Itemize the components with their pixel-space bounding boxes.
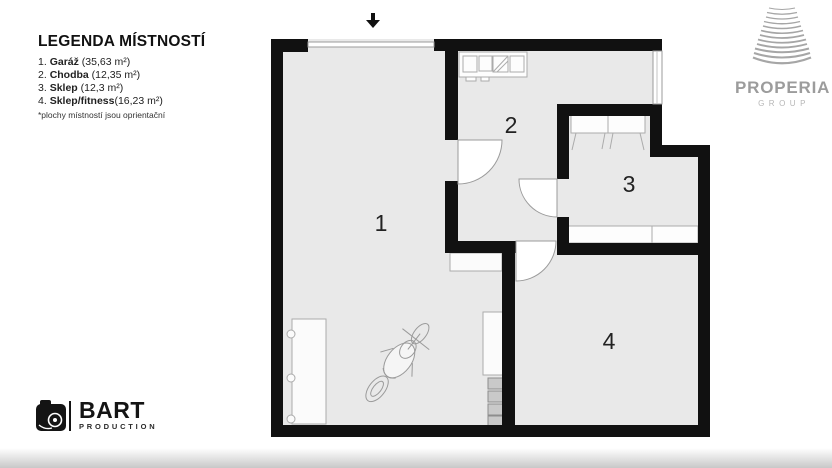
- properia-waves-icon: [740, 5, 824, 71]
- wall-room1-room4: [502, 253, 515, 437]
- room-label-4: 4: [603, 328, 616, 354]
- garage-door: [308, 42, 434, 47]
- entrance-arrow-icon: [366, 13, 380, 28]
- floor-plan-page: 1 2 3 4 LEGENDA MÍSTNOSTÍ 1. Garáž (35,6…: [0, 0, 832, 468]
- wall-right-exterior: [698, 145, 710, 437]
- kitchen-counter: [459, 52, 527, 81]
- legend: LEGENDA MÍSTNOSTÍ 1. Garáž (35,63 m²) 2.…: [38, 33, 258, 120]
- properia-name: PROPERIA: [735, 78, 829, 98]
- wall-top-corner: [271, 39, 308, 52]
- garage-shelf-steps: [488, 378, 503, 426]
- wall-room2-room3-upper: [557, 104, 569, 179]
- window: [653, 51, 662, 104]
- camera-icon: [36, 399, 74, 432]
- room-label-3: 3: [623, 171, 636, 197]
- properia-logo: PROPERIA GROUP: [735, 5, 829, 108]
- wall-room3-room4: [557, 243, 710, 255]
- wall-top-exterior: [434, 39, 662, 51]
- legend-item-4: 4. Sklep/fitness(16,23 m²): [38, 95, 258, 108]
- wall-room3-top: [557, 104, 662, 116]
- legend-items: 1. Garáž (35,63 m²) 2. Chodba (12,35 m²)…: [38, 56, 258, 108]
- wall-room2-bottom: [445, 241, 516, 253]
- bart-logo: BART PRODUCTION: [36, 399, 157, 432]
- legend-note: *plochy místností jsou oprientační: [38, 110, 258, 120]
- garage-cabinet: [483, 312, 503, 375]
- wall-left-exterior: [271, 39, 283, 437]
- legend-item-1: 1. Garáž (35,63 m²): [38, 56, 258, 69]
- properia-sub: GROUP: [735, 99, 829, 108]
- garage-left-shelf: [292, 319, 326, 424]
- room3-bottom-shelf: [562, 226, 698, 243]
- room-label-1: 1: [375, 210, 388, 236]
- wall-room1-room2-upper: [445, 39, 458, 140]
- bottom-fade: [0, 448, 832, 468]
- legend-item-3: 3. Sklep (12,3 m²): [38, 82, 258, 95]
- room-label-2: 2: [505, 112, 518, 138]
- wall-bottom-exterior: [271, 425, 710, 437]
- legend-item-2: 2. Chodba (12,35 m²): [38, 69, 258, 82]
- bart-name: BART: [79, 399, 157, 421]
- bart-sub: PRODUCTION: [79, 422, 157, 431]
- garage-workbench: [450, 253, 502, 271]
- legend-title: LEGENDA MÍSTNOSTÍ: [38, 33, 258, 51]
